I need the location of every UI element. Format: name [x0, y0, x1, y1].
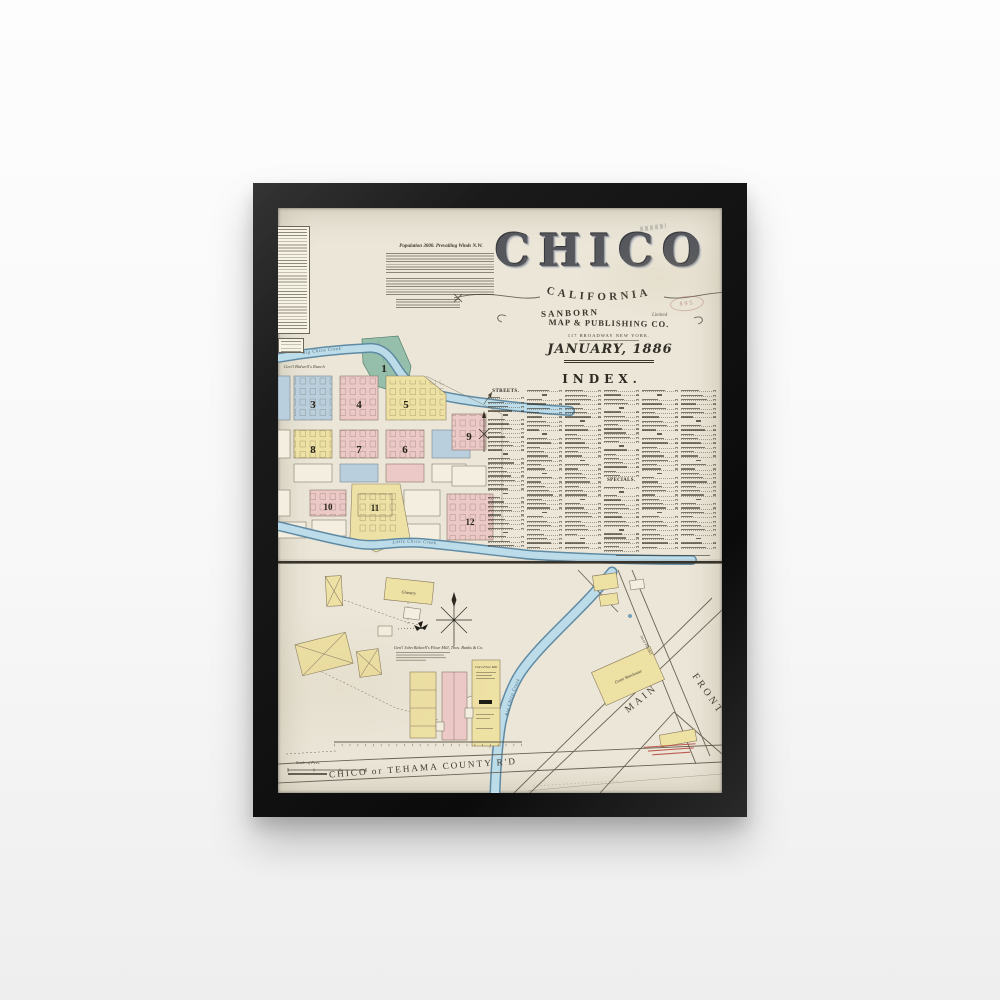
- svg-text:Scale of Feet.: Scale of Feet.: [296, 760, 320, 765]
- index-row: [642, 541, 678, 544]
- svg-text:4: 4: [356, 399, 362, 411]
- index-row: [681, 472, 717, 475]
- index-row: [642, 480, 678, 483]
- index-row: [527, 472, 563, 475]
- index-row: [681, 402, 717, 405]
- index-row: [604, 389, 640, 392]
- index-row: [681, 485, 717, 488]
- index-row: [565, 419, 601, 422]
- index-row: [642, 511, 678, 514]
- index-row: [565, 437, 601, 440]
- city-block: 9: [452, 414, 486, 450]
- index-row: [488, 479, 524, 482]
- index-row: [488, 431, 524, 434]
- index-row: [681, 515, 717, 518]
- index-row: [604, 452, 640, 455]
- publisher-address: 117 BROADWAY NEW YORK.: [544, 333, 674, 338]
- index-row: [527, 485, 563, 488]
- index-row: [527, 411, 563, 414]
- index-row: [488, 483, 524, 486]
- publication-date: JANUARY, 1886: [540, 342, 680, 357]
- index-row: [681, 428, 717, 431]
- index-row: [565, 511, 601, 514]
- barn-x-building: [325, 576, 343, 607]
- index-row: [565, 545, 601, 548]
- map-title: CHICO: [456, 228, 722, 273]
- index-row: [604, 490, 640, 493]
- index-row: [488, 539, 524, 542]
- index-row: [604, 423, 640, 426]
- front-street-label: FRONT: [690, 671, 722, 716]
- photo-background: CALIFORNIA Gen'l Bidwell's Ranch 1 Big C…: [0, 0, 1000, 1000]
- index-row: [604, 431, 640, 434]
- index-row: [488, 409, 524, 412]
- index-row: [642, 485, 678, 488]
- city-block: 8: [294, 430, 332, 458]
- index-row: [681, 489, 717, 492]
- index-row: [681, 411, 717, 414]
- index-row: [565, 445, 601, 448]
- index-row: [642, 441, 678, 444]
- index-row: [565, 519, 601, 522]
- ranch-label: Gen'l Bidwell's Ranch: [284, 364, 325, 369]
- index-row: [565, 450, 601, 453]
- index-row: [642, 459, 678, 462]
- index-row: [604, 515, 640, 518]
- index-row: [565, 454, 601, 457]
- svg-text:10: 10: [324, 502, 334, 512]
- index-row: [642, 428, 678, 431]
- publisher-limited: Limited: [652, 313, 667, 318]
- index-row: [527, 515, 563, 518]
- index-row: [565, 389, 601, 392]
- index-row: [565, 463, 601, 466]
- index-row: [488, 466, 524, 469]
- poster-frame: CALIFORNIA Gen'l Bidwell's Ranch 1 Big C…: [253, 183, 747, 817]
- index-row: [565, 398, 601, 401]
- bottom-map: Big Chico Creek Granary: [278, 570, 722, 793]
- svg-text:12: 12: [466, 517, 476, 527]
- index-row: [527, 393, 563, 396]
- index-row: [642, 415, 678, 418]
- specials-label: SPECIALS.: [604, 479, 640, 484]
- index-row: [527, 454, 563, 457]
- index-row: [604, 436, 640, 439]
- index-row: [681, 398, 717, 401]
- index-row: [527, 545, 563, 548]
- index-row: [488, 492, 524, 495]
- index-row: [565, 489, 601, 492]
- index-row: [642, 515, 678, 518]
- index-row: [681, 393, 717, 396]
- index-row: [527, 532, 563, 535]
- index-row: [642, 432, 678, 435]
- index-row: [565, 515, 601, 518]
- map-paper: CALIFORNIA Gen'l Bidwell's Ranch 1 Big C…: [278, 208, 722, 793]
- shed: [630, 579, 645, 590]
- index-row: [681, 506, 717, 509]
- index-row: [604, 549, 640, 552]
- index-row: [565, 506, 601, 509]
- index-row: [527, 428, 563, 431]
- index-row: [488, 544, 524, 547]
- index-row: [642, 437, 678, 440]
- index-row: [642, 476, 678, 479]
- index-column: [565, 389, 601, 553]
- index-row: [604, 532, 640, 535]
- index-row: [681, 406, 717, 409]
- index-row: [488, 505, 524, 508]
- index-row: [681, 498, 717, 501]
- index-row: [527, 489, 563, 492]
- index-row: [681, 476, 717, 479]
- index-row: [488, 509, 524, 512]
- index-row: [488, 400, 524, 403]
- index-row: [681, 480, 717, 483]
- footnote-note: [396, 299, 460, 308]
- index-row: [527, 476, 563, 479]
- index-row: [642, 519, 678, 522]
- index-row: [642, 493, 678, 496]
- svg-text:5: 5: [403, 399, 409, 411]
- index-row: [565, 524, 601, 527]
- index-row: [642, 489, 678, 492]
- index-row: [681, 415, 717, 418]
- index-row: [488, 535, 524, 538]
- date-underline: [564, 360, 654, 363]
- index-row: [488, 513, 524, 516]
- index-row: [488, 422, 524, 425]
- index-row: [604, 528, 640, 531]
- index-row: [604, 494, 640, 497]
- index-row: [642, 406, 678, 409]
- index-row: [565, 432, 601, 435]
- index-row: [681, 445, 717, 448]
- index-row: [488, 522, 524, 525]
- index-row: [527, 415, 563, 418]
- index-row: [527, 419, 563, 422]
- index-row: [565, 393, 601, 396]
- index-row: [488, 496, 524, 499]
- index-row: [565, 406, 601, 409]
- index-row: [681, 441, 717, 444]
- barn-x-building: [295, 632, 353, 676]
- city-block: 4: [340, 376, 378, 420]
- index-row: [681, 493, 717, 496]
- index-row: [527, 524, 563, 527]
- granary-building: Granary: [384, 578, 434, 605]
- index-row: [681, 459, 717, 462]
- index-row: [642, 498, 678, 501]
- index-row: [642, 524, 678, 527]
- index-row: [488, 413, 524, 416]
- index-row: [604, 541, 640, 544]
- index-row: [565, 411, 601, 414]
- index-row: [681, 467, 717, 470]
- index-row: [604, 444, 640, 447]
- city-block: 6: [386, 430, 424, 458]
- index-row: [642, 419, 678, 422]
- index-row: [565, 532, 601, 535]
- index-row: [488, 435, 524, 438]
- index-row: [527, 463, 563, 466]
- index-row: [604, 486, 640, 489]
- index-row: [565, 502, 601, 505]
- index-row: [604, 402, 640, 405]
- barn-x-building: [356, 649, 381, 678]
- index-row: [565, 498, 601, 501]
- index-row: [681, 532, 717, 535]
- index-row: [527, 441, 563, 444]
- index-column: [681, 389, 717, 553]
- index-row: [642, 537, 678, 540]
- index-row: [488, 457, 524, 460]
- index-row: [527, 445, 563, 448]
- index-row: [642, 506, 678, 509]
- city-block: 3: [294, 376, 332, 420]
- index-row: [527, 406, 563, 409]
- index-row: [527, 467, 563, 470]
- index-row: [527, 459, 563, 462]
- svg-text:9: 9: [466, 431, 472, 443]
- index-row: [527, 450, 563, 453]
- index-row: [488, 470, 524, 473]
- index-column: SPECIALS.: [604, 389, 640, 553]
- index-row: [642, 472, 678, 475]
- city-block: 5: [386, 376, 446, 420]
- index-row: [565, 476, 601, 479]
- block-number: 1: [381, 363, 387, 375]
- index-row: [527, 519, 563, 522]
- index-row: [565, 541, 601, 544]
- index-row: [681, 454, 717, 457]
- index-row: [604, 498, 640, 501]
- index-row: [681, 419, 717, 422]
- index-row: [488, 461, 524, 464]
- index-row: [604, 511, 640, 514]
- fire-department-note: [386, 278, 494, 295]
- index-row: [488, 448, 524, 451]
- index-row: [604, 410, 640, 413]
- index-row: [642, 393, 678, 396]
- index-row: [527, 502, 563, 505]
- shed: [378, 626, 392, 636]
- index-row: [488, 439, 524, 442]
- index-row: [565, 428, 601, 431]
- index-row: [488, 500, 524, 503]
- svg-text:11: 11: [371, 503, 380, 513]
- index-row: [642, 502, 678, 505]
- hydrant-dot: [628, 614, 631, 617]
- compass-rose-icon: [436, 592, 472, 646]
- grain-warehouse: Grain Warehouse: [591, 647, 664, 706]
- index-row: [642, 424, 678, 427]
- index-row: [488, 444, 524, 447]
- index-row: [527, 398, 563, 401]
- index-row: [488, 452, 524, 455]
- index-row: [681, 528, 717, 531]
- index-row: [681, 511, 717, 514]
- index-row: [527, 424, 563, 427]
- index-row: [488, 487, 524, 490]
- index-row: [604, 440, 640, 443]
- windmill-icon: [398, 621, 428, 631]
- index-row: [488, 518, 524, 521]
- index-column: [527, 389, 563, 553]
- index-row: [565, 424, 601, 427]
- svg-text:7: 7: [356, 444, 362, 456]
- index-row: [565, 467, 601, 470]
- index-column: STREETS.: [488, 389, 524, 553]
- index-row: [527, 402, 563, 405]
- svg-text:3: 3: [310, 399, 316, 411]
- map-subtitle: CALIFORNIA: [546, 285, 652, 303]
- index-row: [527, 537, 563, 540]
- index-row: [565, 415, 601, 418]
- city-block: 12: [447, 494, 493, 540]
- index-row: [681, 450, 717, 453]
- index-row: [604, 448, 640, 451]
- index-row: [604, 524, 640, 527]
- index-row: [488, 426, 524, 429]
- index-footnote: [616, 555, 710, 556]
- index-row: [527, 506, 563, 509]
- flour-mill-label: Chico Flour Mill: [475, 665, 498, 669]
- index-row: [681, 424, 717, 427]
- index-row: [642, 445, 678, 448]
- index-row: [681, 537, 717, 540]
- index-row: [681, 502, 717, 505]
- index-row: [488, 396, 524, 399]
- index-row: [604, 519, 640, 522]
- index-row: [642, 463, 678, 466]
- index-row: [642, 545, 678, 548]
- index-row: [681, 463, 717, 466]
- index-row: [604, 461, 640, 464]
- index-row: [604, 507, 640, 510]
- index-row: [488, 418, 524, 421]
- index-row: [604, 469, 640, 472]
- index-row: [527, 541, 563, 544]
- index-row: [565, 441, 601, 444]
- index-row: [681, 545, 717, 548]
- index-row: [681, 524, 717, 527]
- index-row: [565, 472, 601, 475]
- index-row: [604, 545, 640, 548]
- index-row: [642, 411, 678, 414]
- index-row: [604, 419, 640, 422]
- index-row: [681, 541, 717, 544]
- index-title: INDEX.: [532, 372, 672, 386]
- index-row: [642, 467, 678, 470]
- index-row: [604, 474, 640, 477]
- index-row: [488, 526, 524, 529]
- index-row: [527, 480, 563, 483]
- index-row: [604, 393, 640, 396]
- index-row: [565, 528, 601, 531]
- index-row: [604, 414, 640, 417]
- index-row: [565, 480, 601, 483]
- index-row: [642, 528, 678, 531]
- index-row: [565, 537, 601, 540]
- index-column: [642, 389, 678, 553]
- index-row: [642, 389, 678, 392]
- index-row: [527, 389, 563, 392]
- svg-text:8: 8: [310, 444, 316, 456]
- index-columns: STREETS.SPECIALS.: [488, 389, 716, 553]
- index-row: [527, 528, 563, 531]
- index-row: [488, 474, 524, 477]
- index-row: [681, 437, 717, 440]
- index-row: [565, 493, 601, 496]
- index-row: [642, 450, 678, 453]
- index-row: [642, 454, 678, 457]
- shed: [403, 607, 420, 620]
- index-row: [642, 532, 678, 535]
- index-row: [527, 437, 563, 440]
- index-row: [565, 459, 601, 462]
- index-row: [642, 402, 678, 405]
- index-row: [604, 406, 640, 409]
- index-row: [488, 405, 524, 408]
- survey-line: [286, 751, 336, 754]
- outbuildings: [592, 573, 620, 607]
- legend-box: [278, 226, 310, 334]
- index-row: [604, 397, 640, 400]
- index-row: [642, 398, 678, 401]
- index-row: [527, 432, 563, 435]
- city-block: 10: [310, 490, 346, 516]
- index-row: [565, 402, 601, 405]
- svg-text:6: 6: [402, 444, 408, 456]
- index-row: [604, 457, 640, 460]
- index-row: [681, 519, 717, 522]
- index-row: [681, 432, 717, 435]
- index-row: [488, 531, 524, 534]
- index-row: [527, 493, 563, 496]
- index-row: [565, 485, 601, 488]
- legend-box-small: [278, 338, 304, 353]
- index-row: [604, 427, 640, 430]
- index-row: [527, 511, 563, 514]
- index-row: [604, 536, 640, 539]
- mill-title: Gen'l John Bidwell's Flour Mill, Thos. B…: [394, 645, 483, 651]
- streets-label: STREETS.: [488, 389, 524, 394]
- index-row: [681, 389, 717, 392]
- city-block: 7: [340, 430, 378, 458]
- index-row: [527, 498, 563, 501]
- index-row: [604, 502, 640, 505]
- index-row: [604, 465, 640, 468]
